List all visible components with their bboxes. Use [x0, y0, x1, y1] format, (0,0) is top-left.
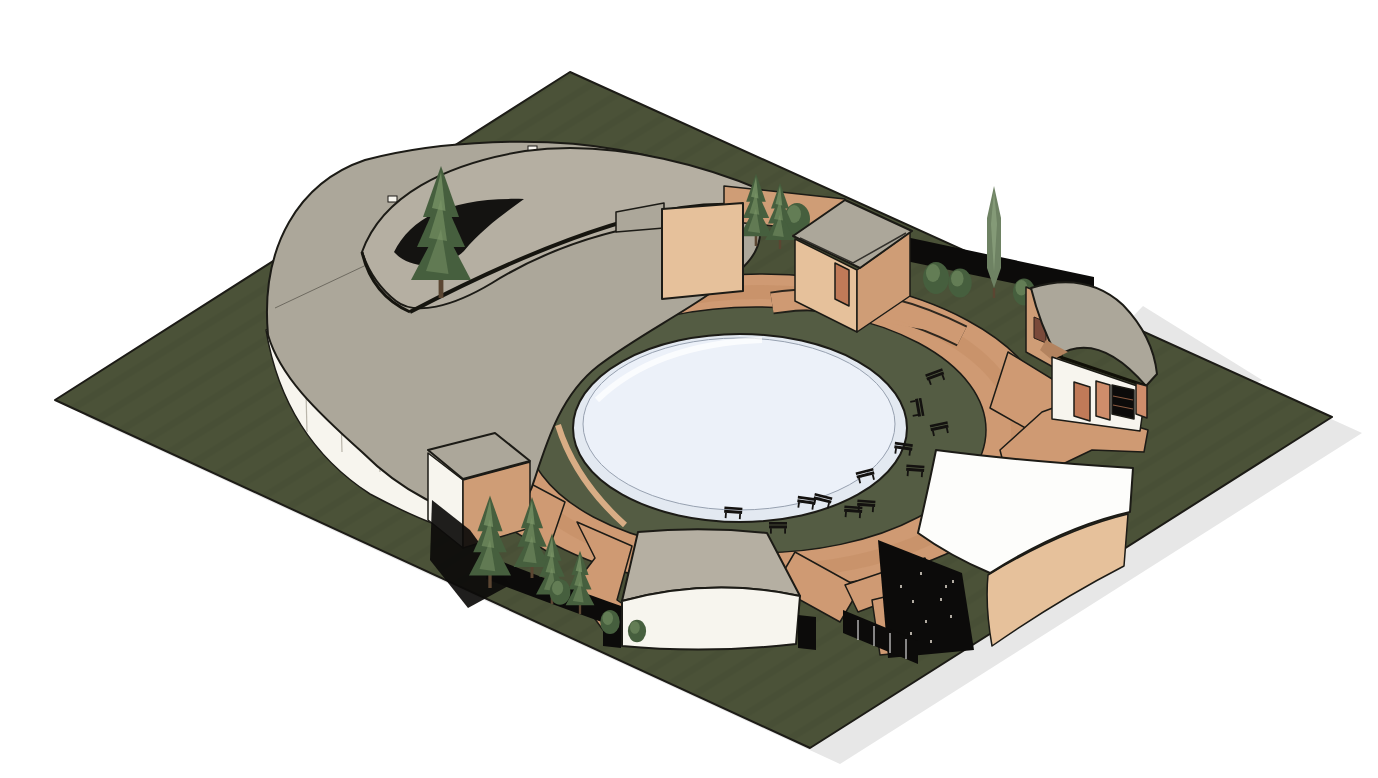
- gatehouse-shutter-right: [1136, 383, 1147, 418]
- bush: [550, 579, 571, 605]
- model-viewport[interactable]: [0, 0, 1378, 778]
- bush: [600, 610, 620, 634]
- gatehouse-display-window: [1112, 385, 1134, 419]
- garden-wall-tall: [662, 203, 743, 299]
- bush: [948, 269, 971, 298]
- kiosk-door: [835, 263, 849, 306]
- bush: [628, 620, 646, 642]
- bush: [923, 262, 949, 294]
- pavilion-post: [798, 615, 816, 650]
- roof-vent: [388, 196, 397, 202]
- pavilion-curved-wall: [622, 588, 800, 650]
- gatehouse-shutter-left: [1096, 381, 1110, 420]
- pool-water: [583, 338, 895, 510]
- gatehouse-door: [1074, 382, 1090, 421]
- render-canvas: [0, 0, 1378, 778]
